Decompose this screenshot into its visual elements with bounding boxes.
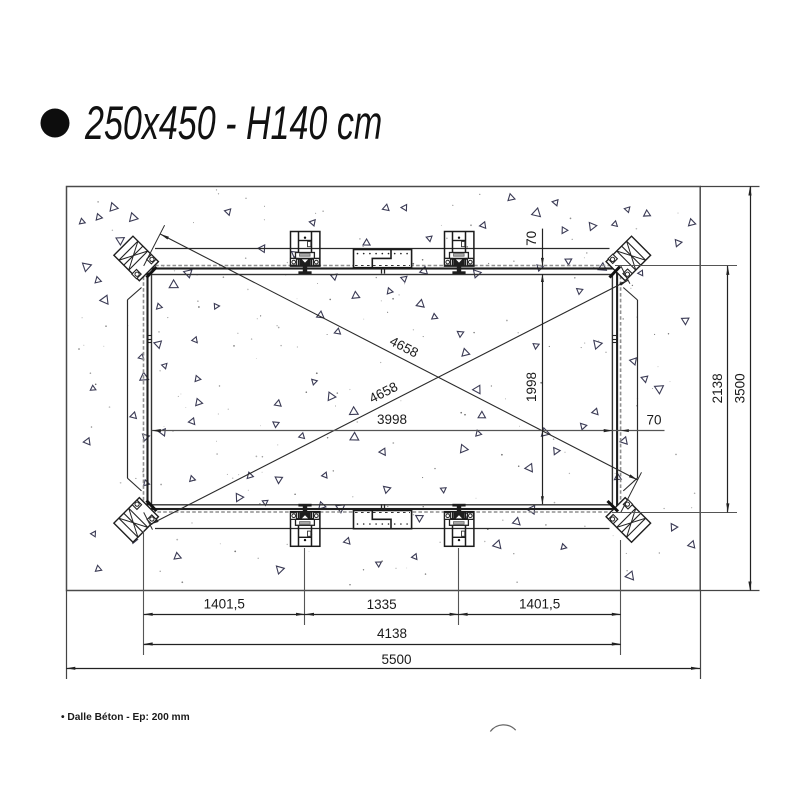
- svg-text:4138: 4138: [377, 626, 407, 641]
- svg-text:• Dalle Béton - Ep: 200 mm: • Dalle Béton - Ep: 200 mm: [61, 712, 190, 723]
- svg-text:70: 70: [524, 231, 539, 246]
- svg-text:5500: 5500: [381, 652, 411, 667]
- svg-text:1335: 1335: [367, 597, 397, 612]
- svg-text:2138: 2138: [710, 373, 725, 403]
- svg-text:1401,5: 1401,5: [204, 597, 245, 612]
- svg-text:3500: 3500: [733, 373, 748, 403]
- svg-text:1998: 1998: [524, 372, 539, 402]
- svg-text:1401,5: 1401,5: [519, 597, 560, 612]
- svg-text:70: 70: [646, 412, 661, 427]
- svg-text:250x450 - H140 cm: 250x450 - H140 cm: [84, 97, 382, 150]
- svg-text:3998: 3998: [377, 412, 407, 427]
